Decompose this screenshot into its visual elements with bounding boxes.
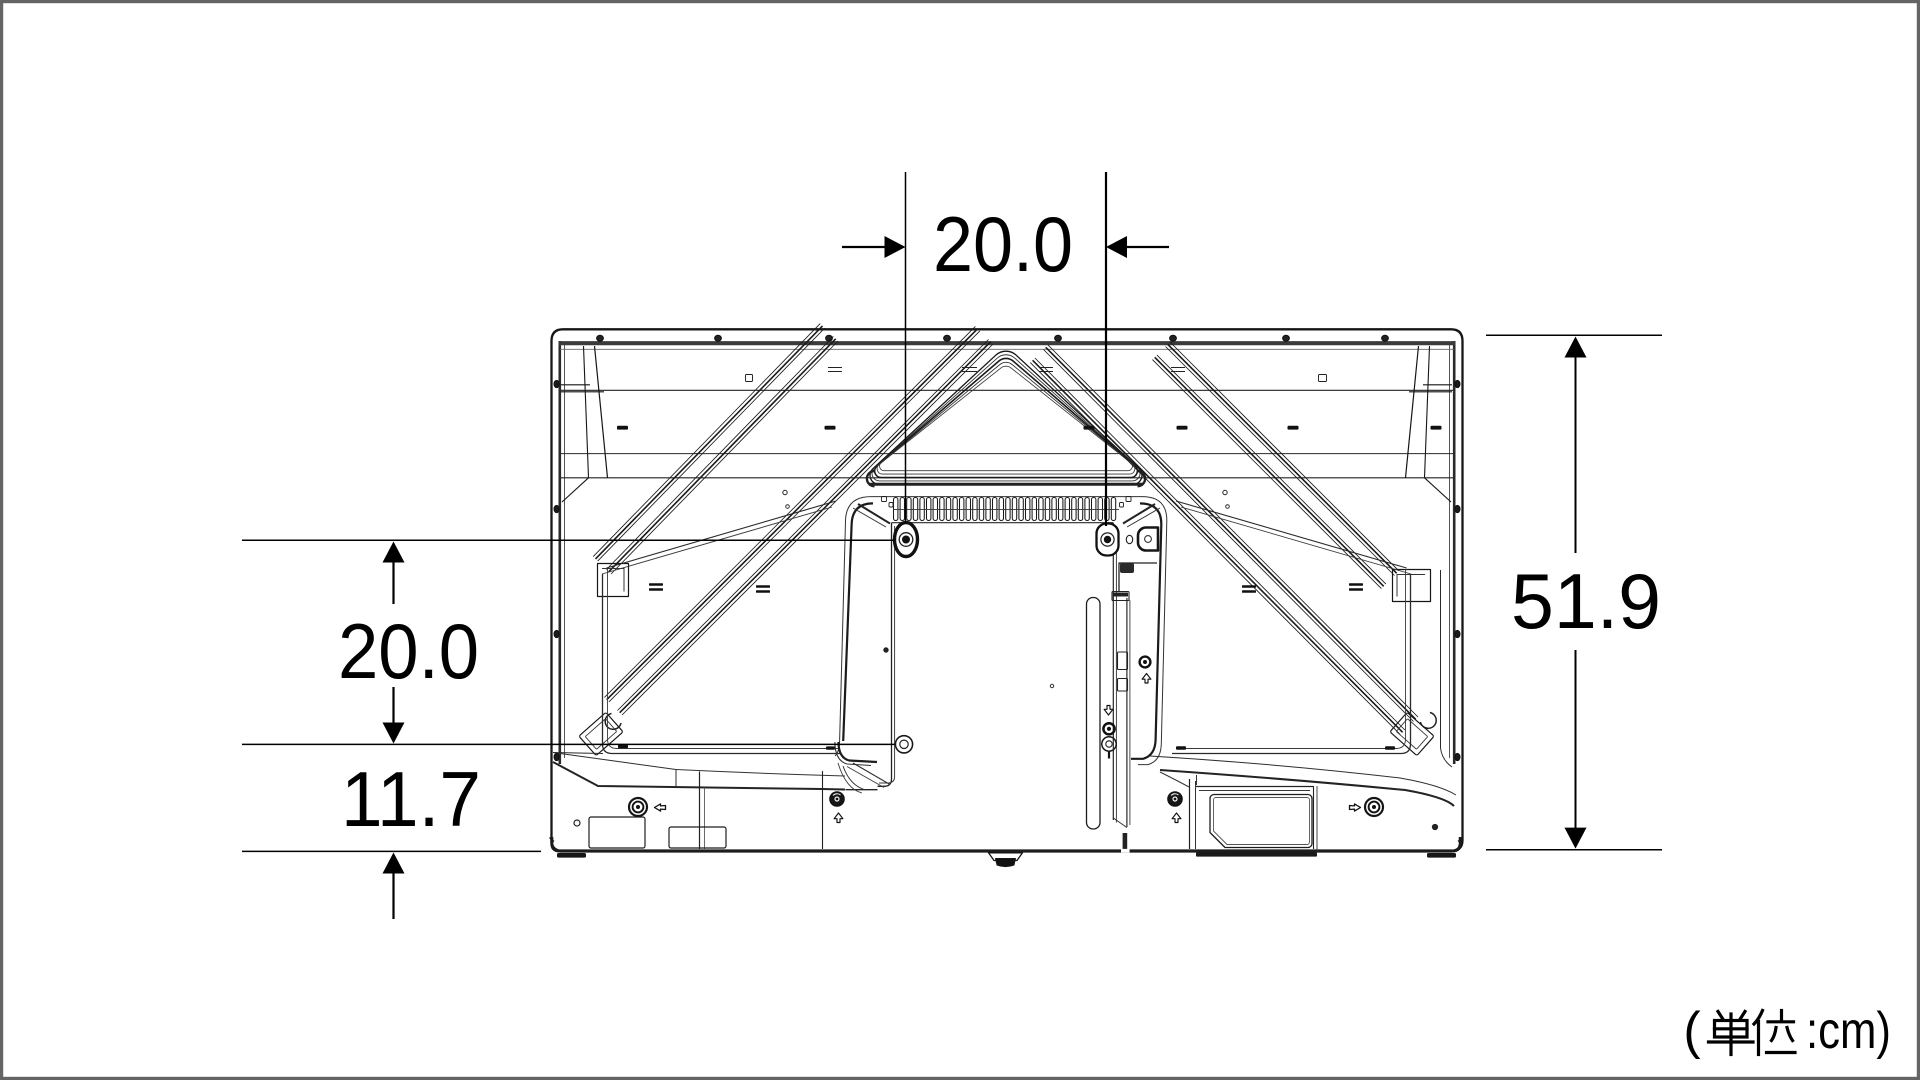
svg-text::cm): :cm) bbox=[1806, 1002, 1891, 1060]
svg-text:11.7: 11.7 bbox=[341, 755, 481, 843]
svg-text:(: ( bbox=[1683, 1002, 1701, 1060]
svg-text:20.0: 20.0 bbox=[933, 200, 1073, 288]
svg-text:20.0: 20.0 bbox=[338, 607, 479, 695]
svg-text:51.9: 51.9 bbox=[1511, 557, 1661, 645]
